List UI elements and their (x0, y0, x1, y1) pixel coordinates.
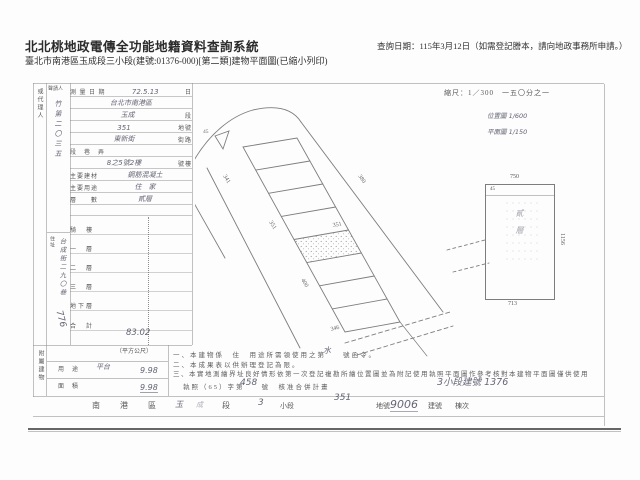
parcel-number-right: 380 (356, 174, 366, 185)
footer-section-1: 玉 (175, 399, 183, 410)
annex-area-handwritten: 9.98 (140, 366, 158, 375)
field-value-handwritten: 東新街 (113, 134, 134, 144)
parcel-number-corner: 45 (203, 129, 209, 135)
parcel-division (320, 276, 375, 286)
footer-district-1: 南 (92, 400, 100, 411)
footer-section-2: 成 (196, 400, 203, 410)
footer-building-number-handwritten: 9006 (390, 398, 418, 412)
applicant-section-rule (47, 232, 70, 233)
field-value-handwritten: 玉成 (120, 110, 134, 120)
field-label: 測 量 日 期 (70, 87, 106, 96)
site-plan-diagram: 45 341 351 380 400 346 351 (195, 100, 535, 360)
footer-building-label: 建號 (428, 401, 442, 411)
scan-bottom-thin-rule (28, 431, 621, 432)
applicant-address-label: 住址 (48, 236, 55, 248)
field-label: 主要用途 (70, 183, 98, 192)
scale-note: 縮尺：1／300 一五〇分之一 (444, 88, 550, 98)
parcel-division (269, 184, 323, 193)
footer-rule-bottom (33, 416, 604, 417)
field-suffix: 日 (185, 87, 192, 96)
note-4-handwritten: 458 (240, 378, 257, 388)
dim-right: 1156 (559, 233, 565, 245)
scan-border-left (33, 83, 34, 397)
annex-usage-handwritten: 平台 (96, 362, 110, 372)
field-suffix: 段 (185, 111, 192, 120)
note-1-handwritten: 水 (323, 345, 331, 356)
area-label: 二 層 (70, 263, 94, 272)
note-section-lot-handwritten: 3小段建號 1376 (437, 374, 508, 388)
field-value-handwritten: 鋼筋混凝土 (128, 170, 163, 180)
area-label: 一 層 (70, 244, 94, 253)
dim-top: 750 (510, 174, 519, 180)
field-suffix: 號樓 (178, 159, 192, 168)
total-area-handwritten: 83.02 (126, 328, 150, 338)
applicant-name-handwritten: 竹第二〇三五 (53, 100, 63, 160)
applicant-label: 聲請人 (48, 85, 63, 92)
field-label: 層 數 (70, 195, 98, 204)
scanned-survey-chart: 或代理人 聲請人 竹第二〇三五 住址 台成街二九〇巷 776 測 量 日 期 7… (0, 0, 640, 480)
field-label: 主要建材 (70, 171, 98, 180)
footer-subsection-label: 小段 (280, 401, 294, 411)
scan-border-right (604, 84, 605, 426)
area-row-floor1: 一 層 (70, 234, 192, 254)
subject-parcel-number: 351 (332, 221, 342, 228)
field-value-handwritten: 住 家 (135, 182, 156, 192)
area-label: 合 計 (70, 321, 94, 330)
area-row-arcade: 騎 樓 (70, 215, 192, 235)
area-unit-label: （平方公尺） (116, 346, 152, 355)
land-registry-printout-page: 北北桃地政電傳全功能地籍資料查詢系統 查詢日期：115年3月12日（如需登記謄本… (0, 0, 640, 480)
area-row-floor3: 三 層 (70, 272, 192, 292)
parcel-division (332, 299, 387, 309)
field-value-handwritten: 8之5號2樓 (107, 158, 141, 168)
field-suffix: 地號 (178, 123, 192, 132)
annex-right-rule (168, 345, 169, 396)
parcel-number-bottom: 346 (330, 325, 340, 333)
footer-district-2: 港 (120, 400, 128, 411)
annex-area-label: 面 積 (58, 381, 79, 390)
footer-lot-handwritten: 351 (334, 393, 351, 403)
dim-bottom: 713 (508, 301, 517, 307)
field-value-handwritten: 351 (117, 124, 130, 132)
table-right-rule (192, 83, 193, 345)
area-label: 地下層 (70, 301, 94, 310)
arcade-strip-rule (486, 195, 554, 196)
area-label: 騎 樓 (70, 225, 94, 234)
parcel-number-lower: 400 (299, 278, 309, 289)
footer-subsection-handwritten: 3 (258, 398, 264, 408)
field-value-handwritten: 72.5.13 (132, 88, 159, 96)
field-value-handwritten: 台北市南港區 (110, 98, 152, 108)
annex-usage-label: 用 途 (58, 364, 79, 373)
area-row-basement: 地下層 (70, 291, 192, 311)
applicant-number-handwritten: 776 (54, 309, 68, 328)
road-left-edge (207, 168, 300, 348)
parcel-number-left: 341 (221, 174, 231, 185)
field-label: 段 巷 弄 (70, 147, 105, 156)
applicant-col-rule (46, 83, 47, 396)
annex-label: 附屬建物 (36, 350, 45, 382)
note-1: 一、本建物係 住 用途所需領使用之第 號函令。 (173, 349, 377, 359)
scan-bottom-heavy-rule (28, 428, 621, 430)
footer-unit-label: 棟次 (455, 401, 469, 411)
applicant-address-handwritten: 台成街二九〇巷 (57, 238, 67, 298)
floor-plan-speckle (504, 199, 540, 265)
parcel-division (256, 161, 310, 170)
area-row-floor2: 二 層 (70, 253, 192, 273)
note-3: 三、本實地測繪界址良好情形依第一次登記複勘所繪位置圖並為附記使用執照平面圖作參考… (173, 368, 589, 378)
parcel-division (281, 207, 335, 216)
field-suffix: 街路 (178, 135, 192, 144)
annex-area-total-handwritten: 9.98 (140, 383, 158, 393)
area-label: 三 層 (70, 282, 94, 291)
arcade-dim: 45 (490, 187, 495, 192)
floor-plan-rectangle: 45 貳層 (485, 184, 555, 300)
field-value-handwritten: 貳層 (138, 194, 152, 204)
road-right-tail (400, 322, 427, 356)
boundary-dashed (447, 240, 485, 250)
footer-lot-label: 地號 (376, 401, 390, 411)
road-right-edge (301, 122, 443, 312)
scale-annotation-1: 位置圖 1/600 (487, 110, 527, 120)
footer-section-label: 段 (222, 400, 230, 411)
annex-row-rule (47, 378, 168, 379)
footer-rule-top (33, 396, 604, 397)
parcel-number-mid: 351 (267, 220, 277, 231)
footer-district-3: 區 (148, 400, 156, 411)
scale-annotation-2: 平面圖 1/150 (487, 126, 527, 136)
road-left-branch (195, 196, 225, 258)
corner-parcel-triangle (215, 131, 229, 149)
road-top-curve (195, 108, 301, 162)
boundary-dashed (453, 263, 489, 272)
agent-label: 或代理人 (35, 88, 44, 120)
